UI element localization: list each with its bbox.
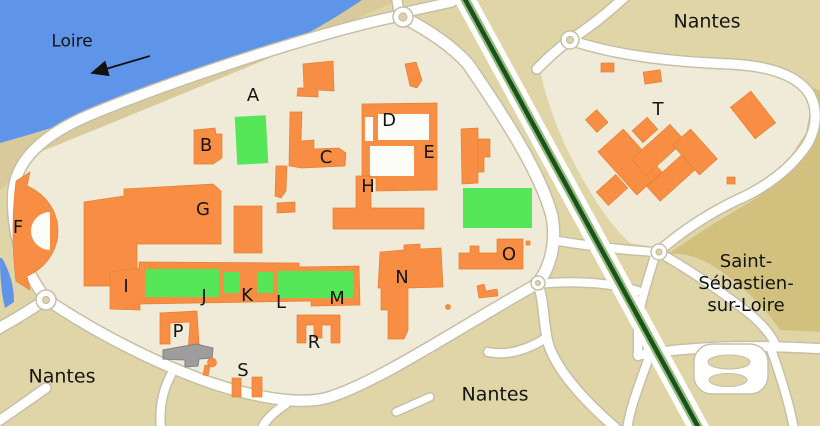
lawn-courtyard [257,272,273,293]
building-c-annex2 [277,202,295,213]
building-dot [446,305,451,310]
lawn-courtyard [145,269,219,297]
lawn-courtyard [224,272,240,293]
courtyard [370,146,414,176]
campus-map: LoireNantesSaint-Sébastien- sur-LoireNan… [0,0,820,426]
road-median-oval [709,374,747,387]
lawn [463,188,532,228]
lawn [235,115,268,165]
courtyard [378,114,429,140]
lawn-courtyard [278,271,353,298]
building-s1 [232,378,241,397]
building-o-dot [526,241,530,245]
map-canvas [0,0,820,426]
building-g-annex [234,206,262,253]
building-s2 [252,377,262,397]
road-median-oval [708,355,750,369]
courtyard [365,117,373,141]
